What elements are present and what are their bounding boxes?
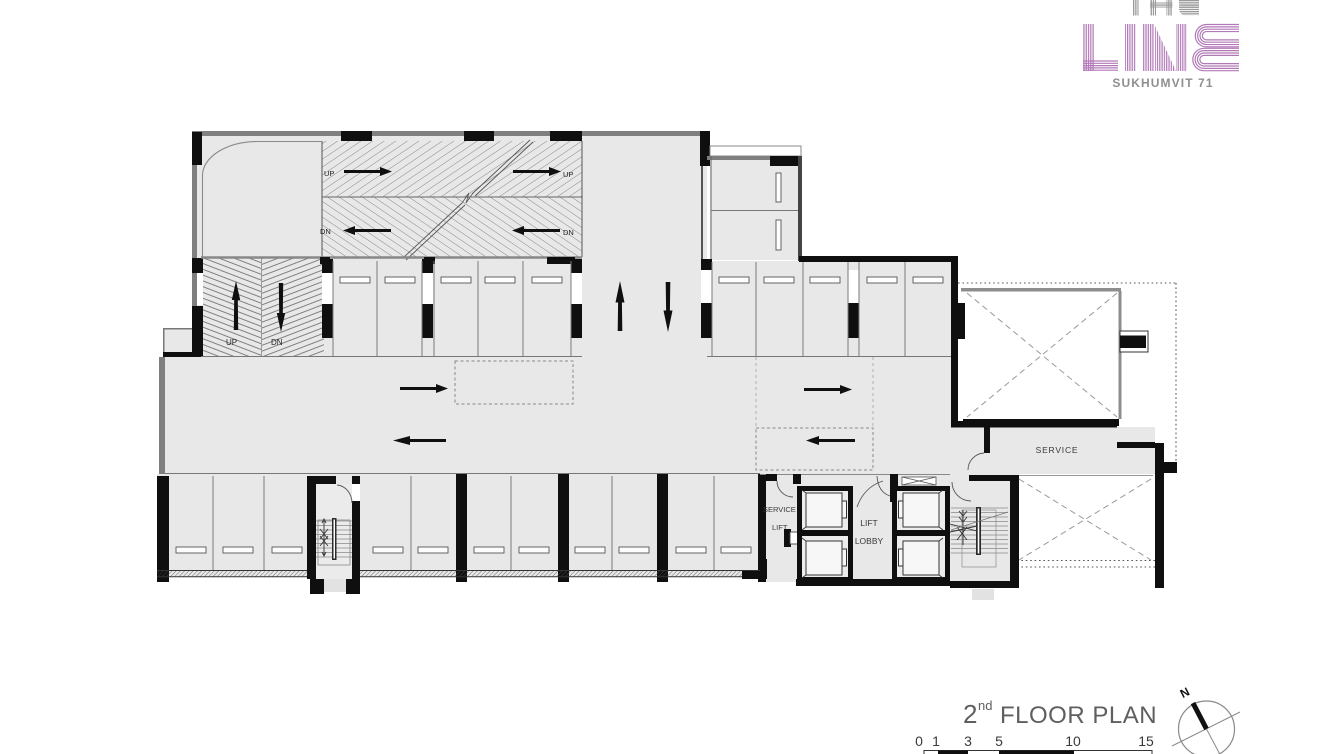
svg-text:SUKHUMVIT 71: SUKHUMVIT 71 (1112, 76, 1213, 90)
svg-text:15: 15 (1138, 733, 1154, 749)
svg-text:SERVICE: SERVICE (1036, 445, 1079, 455)
svg-text:0: 0 (915, 733, 923, 749)
svg-text:2: 2 (963, 699, 977, 729)
svg-text:N: N (1178, 685, 1192, 701)
svg-text:3: 3 (964, 733, 972, 749)
svg-text:LOBBY: LOBBY (855, 536, 884, 546)
svg-text:1: 1 (932, 733, 940, 749)
svg-text:5: 5 (995, 733, 1003, 749)
svg-text:DN: DN (271, 338, 283, 347)
svg-text:FLOOR PLAN: FLOOR PLAN (1000, 702, 1157, 729)
svg-text:DN: DN (320, 227, 331, 236)
svg-text:UP: UP (324, 169, 334, 178)
svg-text:UP: UP (563, 170, 573, 179)
svg-text:LIFT: LIFT (860, 518, 877, 528)
svg-text:10: 10 (1065, 733, 1081, 749)
svg-text:DN: DN (563, 228, 574, 237)
svg-text:nd: nd (978, 698, 992, 713)
svg-text:UP: UP (226, 338, 237, 347)
svg-text:SERVICE: SERVICE (763, 505, 796, 514)
